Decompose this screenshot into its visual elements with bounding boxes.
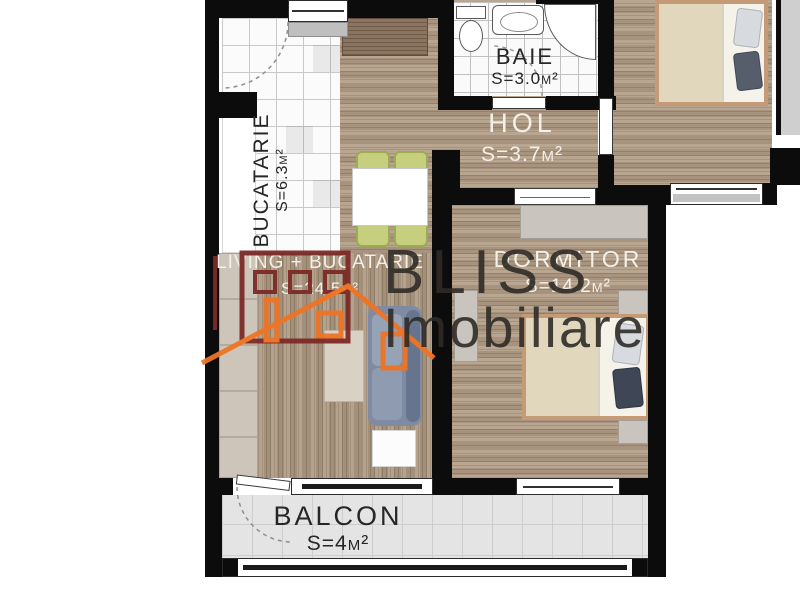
watermark-subbrand: Imobiliare: [383, 302, 646, 354]
room-area: S=3.7m²: [430, 143, 614, 167]
label-hol: HOL S=3.7m²: [430, 108, 614, 167]
watermark-brand: BLISS: [383, 244, 594, 301]
room-name: BALCON: [273, 501, 402, 531]
label-baie: BAIE S=3.0m²: [452, 44, 598, 89]
floor-plan: BAIE S=3.0m² HOL S=3.7m² BUCATARIE S=6.3…: [0, 0, 800, 600]
label-balcon: BALCON S=4m²: [240, 501, 436, 556]
room-area: S=4m²: [240, 532, 436, 556]
room-name: HOL: [488, 108, 556, 138]
room-area: S=3.0m²: [452, 69, 598, 89]
room-name: BUCATARIE: [250, 112, 273, 247]
room-name: BAIE: [496, 44, 554, 69]
